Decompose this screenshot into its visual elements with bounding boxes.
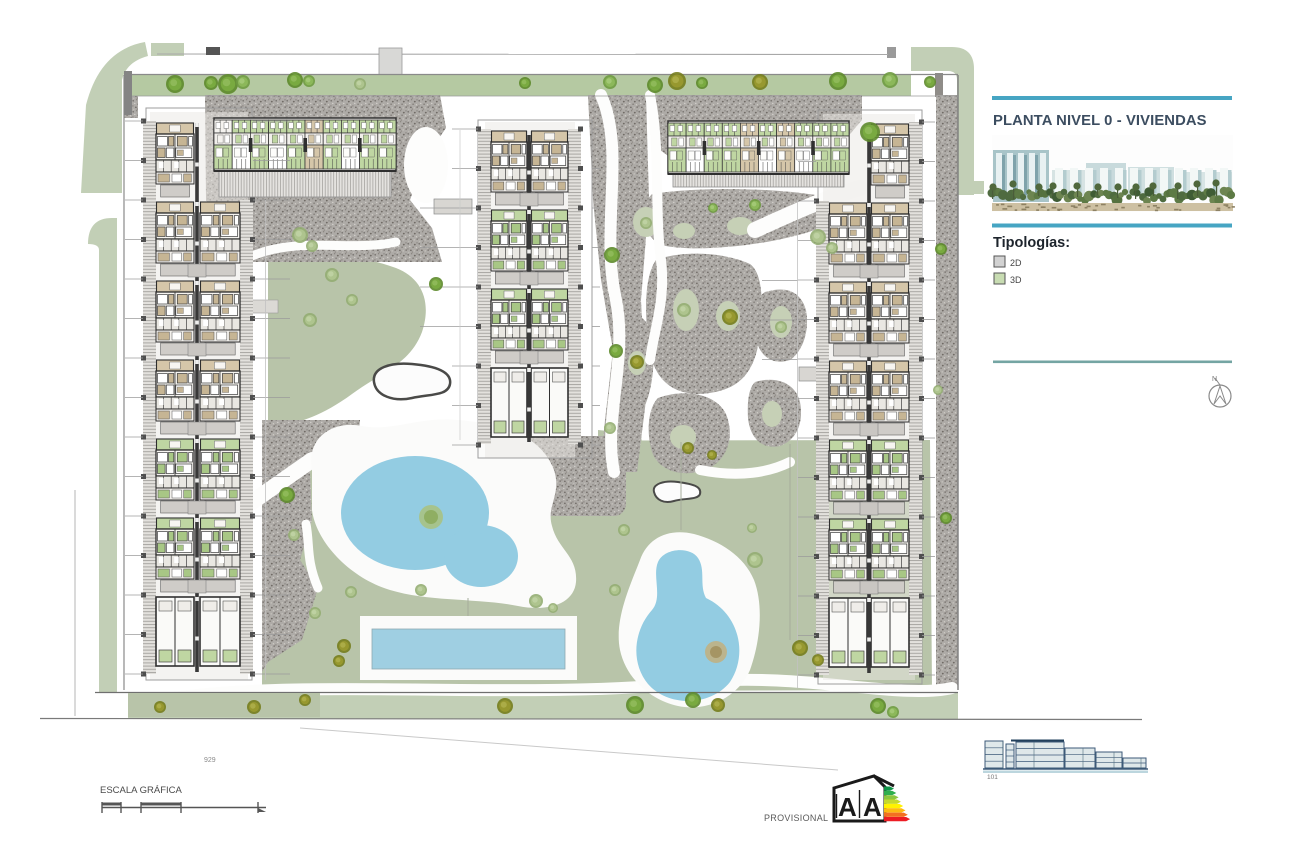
svg-text:PLANTA NIVEL 0 - VIVIENDAS: PLANTA NIVEL 0 - VIVIENDAS [993,113,1207,129]
svg-text:PROVISIONAL: PROVISIONAL [764,813,828,823]
svg-text:Tipologías:: Tipologías: [993,235,1070,251]
svg-text:A: A [863,792,882,822]
svg-text:929: 929 [204,757,216,764]
svg-text:A: A [838,792,857,822]
svg-text:2D: 2D [1010,258,1022,268]
svg-text:3D: 3D [1010,275,1022,285]
svg-text:N: N [1212,376,1217,383]
svg-text:101: 101 [987,774,998,781]
svg-text:ESCALA GRÁFICA: ESCALA GRÁFICA [100,785,182,796]
